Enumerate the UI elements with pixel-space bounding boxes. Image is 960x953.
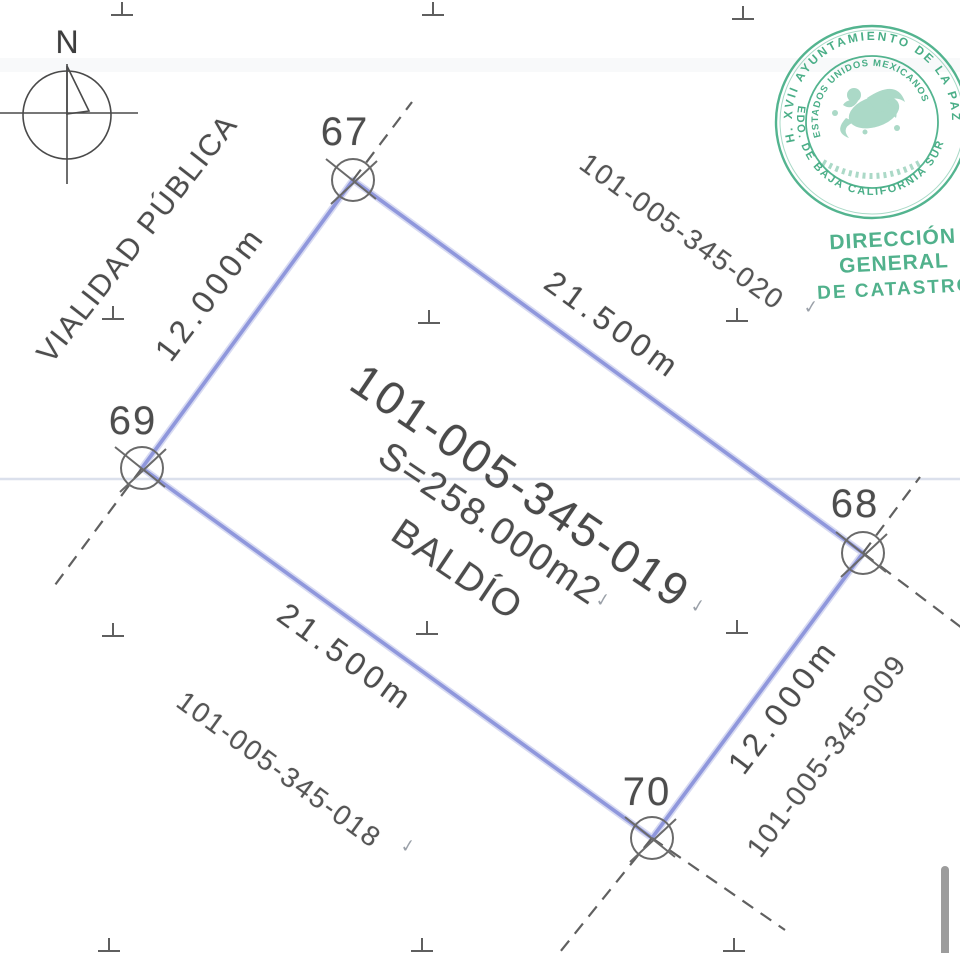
grid-tick bbox=[723, 938, 745, 952]
compass-rose bbox=[0, 64, 138, 184]
scrollbar-thumb[interactable] bbox=[941, 866, 949, 953]
north-label: N bbox=[55, 26, 78, 58]
vertex-label-68: 68 bbox=[831, 484, 880, 524]
grid-tick bbox=[422, 2, 444, 16]
cadastral-plan: H. XVII AYUNTAMIENTO DE LA PAZ EDO. DE B… bbox=[0, 0, 960, 953]
stamp-office-caption: DIRECCIÓN GENERAL DE CATASTRO bbox=[786, 223, 960, 307]
grid-tick bbox=[111, 2, 133, 16]
laurel-wreath-icon bbox=[823, 162, 921, 176]
grid-tick bbox=[98, 938, 120, 952]
stamp-office-line1: DIRECCIÓN GENERAL bbox=[786, 223, 960, 282]
grid-tick bbox=[732, 6, 754, 20]
vertex-label-70: 70 bbox=[623, 772, 672, 812]
grid-tick bbox=[726, 620, 748, 634]
grid-tick bbox=[102, 623, 124, 637]
checkmark-icon: ✓ bbox=[690, 596, 707, 615]
eagle-emblem-icon bbox=[832, 88, 905, 138]
grid-tick bbox=[411, 938, 433, 952]
grid-tick bbox=[726, 308, 748, 322]
grid-tick bbox=[416, 621, 438, 635]
vertex-label-69: 69 bbox=[109, 401, 158, 441]
grid-tick bbox=[418, 310, 440, 324]
checkmark-icon: ✓ bbox=[595, 590, 612, 609]
grid-tick bbox=[102, 306, 124, 320]
checkmark-icon: ✓ bbox=[400, 836, 417, 855]
checkmark-icon: ✓ bbox=[803, 297, 820, 316]
vertex-label-67: 67 bbox=[321, 112, 370, 152]
